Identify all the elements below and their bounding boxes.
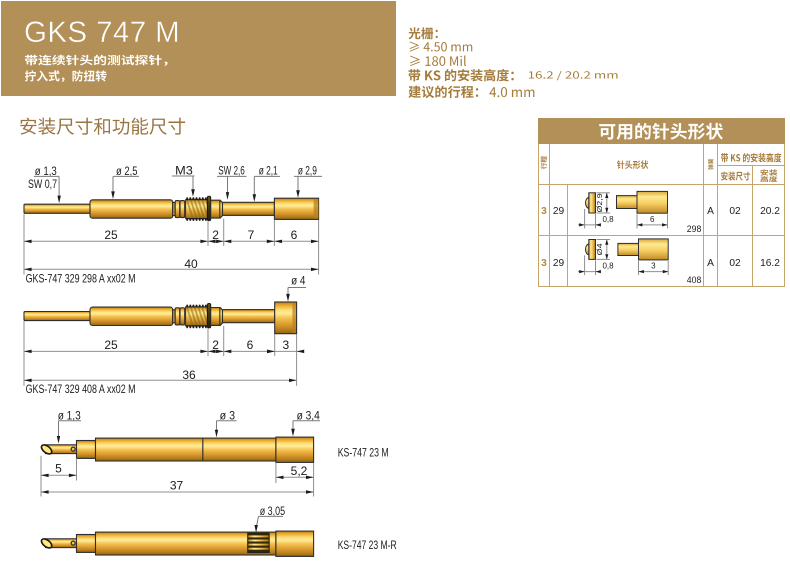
svg-text:ø 3,4: ø 3,4 bbox=[297, 408, 320, 422]
svg-text:ø 2,5: ø 2,5 bbox=[116, 164, 138, 178]
svg-text:25: 25 bbox=[104, 228, 118, 242]
svg-text:KS-747 23 M: KS-747 23 M bbox=[338, 445, 389, 459]
svg-text:ø 3,05: ø 3,05 bbox=[260, 504, 286, 518]
svg-text:5,2: 5,2 bbox=[291, 464, 308, 478]
svg-text:ø 1,3: ø 1,3 bbox=[58, 408, 81, 422]
svg-text:ø 2,1: ø 2,1 bbox=[259, 163, 278, 177]
svg-text:ø 1,3: ø 1,3 bbox=[35, 164, 57, 178]
svg-text:GKS-747 329 298 A xx02 M: GKS-747 329 298 A xx02 M bbox=[26, 272, 136, 286]
svg-text:2: 2 bbox=[212, 338, 219, 352]
svg-text:M3: M3 bbox=[175, 163, 193, 177]
svg-text:3: 3 bbox=[282, 338, 289, 352]
svg-text:25: 25 bbox=[104, 338, 118, 352]
svg-text:SW 2,6: SW 2,6 bbox=[218, 163, 245, 177]
svg-text:5: 5 bbox=[55, 461, 62, 475]
svg-text:40: 40 bbox=[184, 257, 198, 271]
svg-text:ø 2,9: ø 2,9 bbox=[298, 163, 317, 177]
svg-text:36: 36 bbox=[182, 368, 196, 382]
svg-text:SW 0,7: SW 0,7 bbox=[28, 177, 57, 191]
svg-text:KS-747 23 M-R: KS-747 23 M-R bbox=[338, 538, 397, 552]
svg-text:6: 6 bbox=[291, 228, 298, 242]
svg-text:GKS-747 329 408 A xx02 M: GKS-747 329 408 A xx02 M bbox=[26, 382, 136, 396]
svg-text:37: 37 bbox=[170, 478, 184, 492]
svg-text:2: 2 bbox=[212, 228, 219, 242]
svg-text:ø 4: ø 4 bbox=[291, 273, 306, 287]
svg-text:ø 3: ø 3 bbox=[220, 408, 236, 422]
svg-text:7: 7 bbox=[248, 228, 255, 242]
svg-text:6: 6 bbox=[247, 338, 254, 352]
